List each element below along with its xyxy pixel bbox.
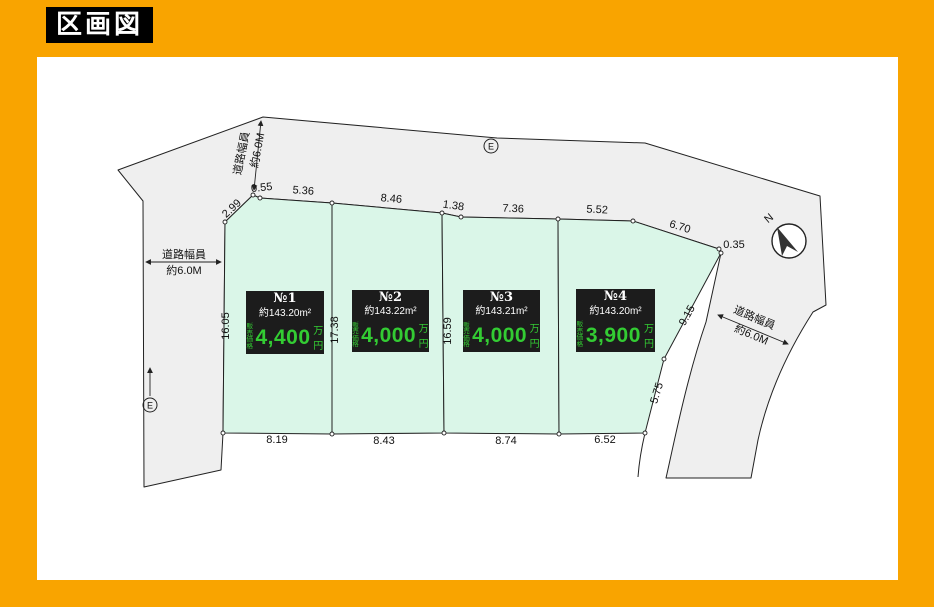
price-label: 販売 価格 (463, 323, 470, 349)
lot-price-row: 販売 価格 3,900 万円 (576, 320, 655, 351)
lot-area: 約143.21m² (475, 306, 527, 318)
lot-price-row: 販売 価格 4,400 万円 (246, 322, 324, 353)
price-label: 販売 価格 (352, 323, 359, 349)
dim-divider-1: 16.59 (442, 317, 454, 345)
dim-top-4: 7.36 (502, 202, 524, 215)
lot-4-info-box: №4 約143.20m² 販売 価格 3,900 万円 (576, 289, 655, 352)
price-unit: 万円 (529, 320, 540, 350)
price-unit: 万円 (643, 320, 655, 350)
lot-1-info-box: №1 約143.20m² 販売 価格 4,400 万円 (246, 291, 324, 354)
dim-left-edge: 16.05 (220, 312, 232, 340)
lot-price: 3,900 (586, 325, 641, 346)
boundary-extension-line (638, 433, 645, 477)
compass-circle (772, 224, 806, 258)
dim-top-0: 0.55 (250, 181, 273, 195)
dim-top-5: 5.52 (586, 203, 608, 216)
dim-top-7: 0.35 (723, 239, 744, 251)
price-unit: 万円 (418, 320, 429, 350)
price-label: 販売 価格 (576, 322, 584, 348)
lot-number: №4 (604, 290, 627, 304)
road-label-left-width: 約6.0M (166, 263, 201, 277)
page-title: 区画図 (46, 7, 153, 43)
lot-area: 約143.22m² (364, 306, 416, 318)
lot-price: 4,000 (361, 325, 416, 346)
plot-map-page: 区画図 (0, 0, 934, 607)
dim-top-2: 8.46 (380, 192, 402, 206)
dim-divider-0: 17.38 (329, 316, 341, 344)
lot-area: 約143.20m² (589, 306, 641, 318)
dim-top-1: 5.36 (292, 184, 314, 197)
lot-number: №3 (490, 291, 513, 305)
lot-area: 約143.20m² (259, 308, 311, 320)
lot-price: 4,000 (472, 325, 527, 346)
lot-price-row: 販売 価格 4,000 万円 (463, 320, 540, 351)
price-unit: 万円 (313, 322, 324, 352)
lot-2-info-box: №2 約143.22m² 販売 価格 4,000 万円 (352, 290, 429, 352)
lot-number: №1 (273, 292, 296, 306)
dim-bottom-3: 6.52 (594, 434, 615, 446)
lot-price: 4,400 (255, 327, 310, 348)
dim-bottom-1: 8.43 (373, 435, 394, 447)
road-label-left-name: 道路幅員 (162, 247, 206, 261)
lot-number: №2 (379, 291, 402, 305)
lot-price-row: 販売 価格 4,000 万円 (352, 320, 429, 351)
utility-pole-label: E (147, 401, 153, 411)
dim-bottom-0: 8.19 (266, 434, 287, 446)
dim-bottom-2: 8.74 (495, 435, 516, 447)
lot-3-info-box: №3 約143.21m² 販売 価格 4,000 万円 (463, 290, 540, 352)
utility-pole-label: E (488, 142, 494, 152)
price-label: 販売 価格 (246, 324, 253, 350)
